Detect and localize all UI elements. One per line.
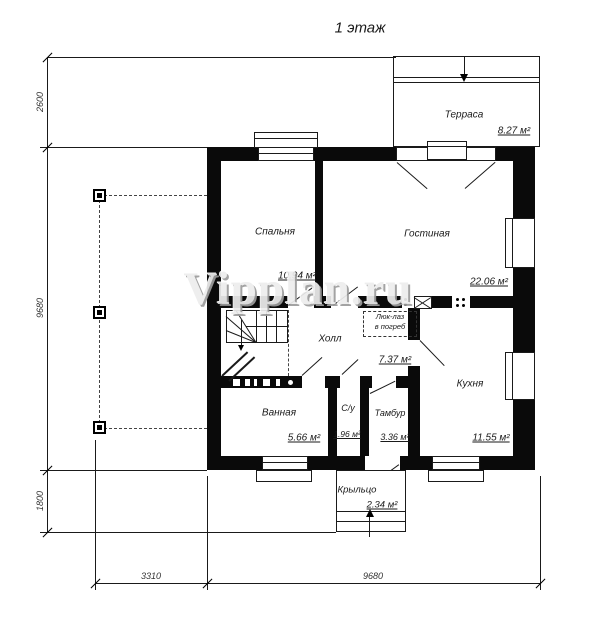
fixture-glyph — [254, 379, 257, 386]
down-arrow-icon — [238, 345, 244, 351]
area-label-kitchen: 11.55 м² — [472, 433, 509, 444]
area-label-terrace: 8.27 м² — [498, 126, 530, 137]
carport-post — [93, 306, 106, 319]
window-bedroom-sill — [254, 138, 318, 139]
dim-label-porch-depth: 1800 — [35, 491, 45, 511]
door-swing-vestibule — [370, 381, 396, 394]
extension-line — [207, 476, 208, 590]
wall-vestibule-north — [396, 376, 408, 388]
area-label-wc: 1.96 м² — [333, 429, 361, 439]
door-swing-bathroom — [302, 357, 323, 376]
area-label-vestibule: 3.36 м² — [380, 432, 409, 442]
cellar-hatch-note-line2: в погреб — [364, 322, 416, 332]
area-label-bathroom: 5.66 м² — [288, 433, 320, 444]
wall-kitchen-west — [408, 366, 420, 456]
watermark: Vipplan.ru — [184, 262, 413, 316]
room-label-vestibule: Тамбур — [375, 408, 406, 418]
door-terrace-leaf — [428, 146, 466, 147]
porch-step — [336, 512, 337, 532]
window-bathroom-sill — [256, 470, 312, 482]
extension-line — [40, 147, 207, 148]
window-living — [505, 218, 535, 268]
window-bathroom — [262, 462, 308, 463]
room-label-hall: Холл — [318, 334, 341, 345]
dim-label-terrace-depth: 2600 — [35, 92, 45, 112]
plan-dot — [462, 304, 465, 307]
fixture-glyph — [233, 379, 240, 386]
door-swing-kitchen — [420, 340, 445, 366]
porch-step — [336, 521, 406, 522]
door-terrace-leaf — [427, 141, 467, 160]
door-swing-terrace-right — [465, 162, 496, 189]
area-label-living: 22.06 м² — [470, 277, 508, 288]
dim-label-house-width: 9680 — [363, 571, 383, 581]
dimension-line-left — [47, 57, 48, 532]
carport-dashed-bottom — [99, 428, 207, 429]
window-kitchen-south — [432, 462, 480, 463]
area-label-hall: 7.37 м² — [379, 355, 411, 366]
plan-dot — [456, 304, 459, 307]
window-bedroom-sill — [254, 132, 318, 148]
wall-wc-north — [325, 376, 340, 388]
dim-label-carport-width: 3310 — [141, 571, 161, 581]
window-bathroom — [262, 456, 308, 470]
carport-post — [93, 421, 106, 434]
room-label-bathroom: Ванная — [262, 408, 296, 419]
wall-bathroom-wc — [328, 388, 337, 456]
room-label-kitchen: Кухня — [457, 379, 484, 390]
window-kitchen-east — [512, 352, 513, 400]
dim-label-house-height: 9680 — [35, 298, 45, 318]
extension-line — [540, 476, 541, 590]
room-label-terrace: Терраса — [445, 110, 484, 121]
fixture-glyph — [245, 379, 250, 386]
room-label-wc: С/у — [341, 403, 355, 413]
carport-dashed-top — [99, 195, 207, 196]
porch-arrow-line — [369, 517, 370, 537]
terrace-roof-line — [393, 82, 540, 83]
plan-dot — [456, 298, 459, 301]
wall-vestibule-north — [360, 376, 372, 388]
window-kitchen-south-sill — [428, 470, 484, 482]
window-living — [512, 218, 513, 268]
wall-living-kitchen — [431, 296, 452, 308]
fixture-glyph — [263, 379, 270, 386]
wall-right — [513, 147, 535, 470]
room-label-bedroom: Спальня — [255, 227, 295, 238]
stairs-tread — [246, 326, 288, 327]
door-swing-terrace-left — [397, 162, 428, 189]
down-arrow-icon — [460, 74, 468, 82]
stairs-boundary-dashed — [288, 310, 289, 376]
room-label-living: Гостиная — [404, 229, 450, 240]
floor-plan: 1 этаж Терраса 8.27 м² Люк-лаз в погреб — [0, 0, 600, 644]
room-label-porch: Крыльцо — [338, 485, 377, 496]
extension-line — [47, 57, 396, 58]
plan-dot — [462, 298, 465, 301]
page-title: 1 этаж — [335, 20, 386, 37]
porch-step — [405, 512, 406, 532]
extension-line — [40, 470, 207, 471]
fixture-glyph — [276, 379, 280, 386]
window-kitchen-east — [505, 352, 535, 400]
window-kitchen-south — [432, 456, 480, 470]
window-bedroom — [258, 153, 314, 154]
extension-line — [40, 532, 336, 533]
door-swing-wc — [342, 359, 359, 375]
stairs-arrow-line — [241, 320, 242, 346]
area-label-porch: 2.34 м² — [367, 500, 398, 511]
wall-wc-vestibule — [360, 388, 369, 456]
extension-line — [95, 440, 96, 590]
carport-post — [93, 189, 106, 202]
porch-step — [336, 531, 406, 532]
wall-living-kitchen — [470, 296, 521, 308]
fixture-glyph — [288, 380, 293, 385]
dimension-line-bottom — [95, 583, 540, 584]
window-bedroom — [258, 147, 314, 161]
